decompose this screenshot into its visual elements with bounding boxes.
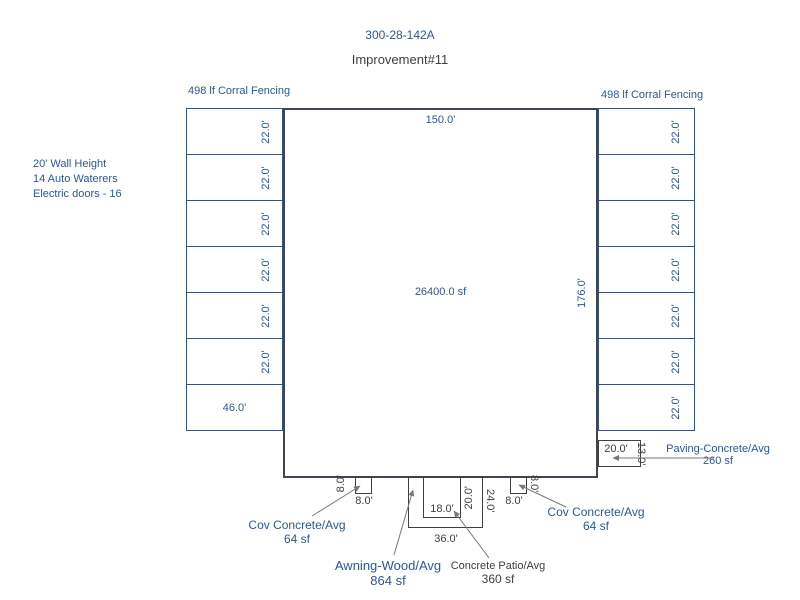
stall-dimension: 22.0' bbox=[260, 212, 272, 236]
right-stall-row: 22.0' bbox=[599, 201, 694, 247]
awning-height-dimension: 24.0' bbox=[483, 480, 497, 522]
cov-concrete-right-outline bbox=[510, 477, 527, 494]
paving-width-dimension: 20.0' bbox=[599, 443, 633, 455]
left-stall-row: 22.0' bbox=[187, 155, 282, 201]
left-stall-row: 22.0' bbox=[187, 109, 282, 155]
cov-concrete-left-label: Cov Concrete/Avg 64 sf bbox=[237, 518, 357, 546]
cov-concrete-right-label: Cov Concrete/Avg 64 sf bbox=[537, 505, 655, 533]
right-stall-row: 22.0' bbox=[599, 155, 694, 201]
cov-left-width-dimension: 8.0' bbox=[348, 495, 380, 507]
right-stall-strip: 22.0' 22.0' 22.0' 22.0' 22.0' 22.0' 22.0… bbox=[598, 108, 695, 431]
left-stall-row: 22.0' bbox=[187, 293, 282, 339]
attachment-name: Cov Concrete/Avg bbox=[237, 518, 357, 532]
stall-dimension: 22.0' bbox=[670, 350, 682, 374]
right-stall-row: 22.0' bbox=[599, 385, 694, 430]
paving-label: Paving-Concrete/Avg 260 sf bbox=[653, 443, 783, 467]
improvement-title: Improvement#11 bbox=[0, 52, 800, 67]
attachment-area: 360 sf bbox=[438, 572, 558, 586]
awning-width-dimension: 36.0' bbox=[430, 533, 462, 545]
stall-dimension: 22.0' bbox=[260, 258, 272, 282]
attachment-name: Cov Concrete/Avg bbox=[537, 505, 655, 519]
left-stall-row: 22.0' bbox=[187, 201, 282, 247]
main-height-dimension: 176.0' bbox=[576, 278, 588, 308]
awning-label: Awning-Wood/Avg 864 sf bbox=[328, 558, 448, 588]
parcel-id-title: 300-28-142A bbox=[0, 28, 800, 42]
left-strip-width-dimension: 46.0' bbox=[187, 402, 282, 414]
cov-concrete-left-outline bbox=[355, 477, 372, 494]
attachment-name: Awning-Wood/Avg bbox=[328, 558, 448, 573]
attachment-area: 64 sf bbox=[237, 532, 357, 546]
stall-dimension: 22.0' bbox=[670, 120, 682, 144]
stall-dimension: 22.0' bbox=[260, 120, 272, 144]
right-stall-row: 22.0' bbox=[599, 109, 694, 155]
main-width-dimension: 150.0' bbox=[285, 114, 596, 126]
right-stall-row: 22.0' bbox=[599, 339, 694, 385]
corral-fencing-label-left: 498 lf Corral Fencing bbox=[188, 85, 290, 97]
stall-dimension: 22.0' bbox=[670, 166, 682, 190]
patio-height-dimension: 20.0' bbox=[462, 479, 476, 517]
stall-dimension: 22.0' bbox=[670, 396, 682, 420]
stall-dimension: 22.0' bbox=[260, 350, 272, 374]
note-auto-waterers: 14 Auto Waterers bbox=[33, 172, 122, 187]
corral-fencing-label-right: 498 lf Corral Fencing bbox=[601, 89, 703, 101]
concrete-patio-label: Concrete Patio/Avg 360 sf bbox=[438, 560, 558, 586]
sketch-canvas: 300-28-142A Improvement#11 498 lf Corral… bbox=[0, 0, 800, 600]
stall-dimension: 22.0' bbox=[670, 212, 682, 236]
patio-width-dimension: 18.0' bbox=[426, 503, 458, 515]
attachment-area: 260 sf bbox=[653, 455, 783, 467]
right-stall-row: 22.0' bbox=[599, 247, 694, 293]
cov-right-width-dimension: 8.0' bbox=[498, 495, 530, 507]
cov-right-height-dimension: 8.0' bbox=[527, 470, 541, 498]
attachment-name: Concrete Patio/Avg bbox=[438, 560, 558, 572]
stall-dimension: 22.0' bbox=[260, 166, 272, 190]
note-wall-height: 20' Wall Height bbox=[33, 157, 122, 172]
stall-dimension: 22.0' bbox=[670, 304, 682, 328]
right-stall-row: 22.0' bbox=[599, 293, 694, 339]
note-electric-doors: Electric doors - 16 bbox=[33, 187, 122, 202]
main-building-outline: 150.0' 26400.0 sf 176.0' bbox=[283, 108, 598, 478]
attachment-area: 864 sf bbox=[328, 573, 448, 588]
left-stall-row-bottom: 46.0' bbox=[187, 385, 282, 430]
paving-height-dimension: 13.0' bbox=[634, 440, 648, 467]
stall-dimension: 22.0' bbox=[670, 258, 682, 282]
cov-left-height-dimension: 8.0' bbox=[334, 470, 348, 498]
building-notes: 20' Wall Height 14 Auto Waterers Electri… bbox=[33, 157, 122, 202]
left-stall-row: 22.0' bbox=[187, 339, 282, 385]
left-stall-row: 22.0' bbox=[187, 247, 282, 293]
main-area-label: 26400.0 sf bbox=[285, 286, 596, 298]
attachment-area: 64 sf bbox=[537, 519, 655, 533]
left-stall-strip: 22.0' 22.0' 22.0' 22.0' 22.0' 22.0' 46.0… bbox=[186, 108, 283, 431]
attachment-name: Paving-Concrete/Avg bbox=[653, 443, 783, 455]
stall-dimension: 22.0' bbox=[260, 304, 272, 328]
